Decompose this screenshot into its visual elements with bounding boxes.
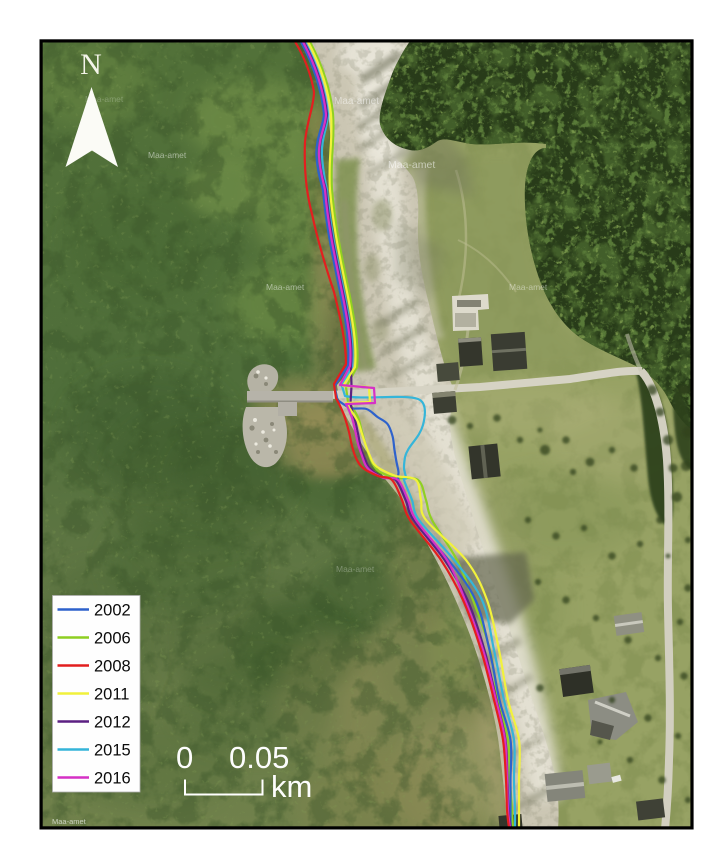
svg-text:Maa-amet: Maa-amet [266,282,305,292]
svg-text:2016: 2016 [94,769,131,787]
svg-text:2008: 2008 [94,657,131,675]
svg-text:Maa-amet: Maa-amet [336,564,375,574]
svg-text:2015: 2015 [94,741,131,759]
svg-text:2012: 2012 [94,713,131,731]
svg-text:Maa-amet: Maa-amet [334,96,379,107]
svg-text:Maa-amet: Maa-amet [388,159,435,171]
svg-text:2011: 2011 [94,685,129,703]
svg-text:N: N [80,48,102,81]
svg-text:Maa-amet: Maa-amet [52,817,87,826]
svg-text:2002: 2002 [94,601,131,619]
svg-text:2006: 2006 [94,629,131,647]
svg-text:km: km [271,769,312,804]
svg-text:Maa-amet: Maa-amet [509,282,548,292]
svg-text:0: 0 [176,740,193,775]
svg-text:Maa-amet: Maa-amet [148,150,187,160]
